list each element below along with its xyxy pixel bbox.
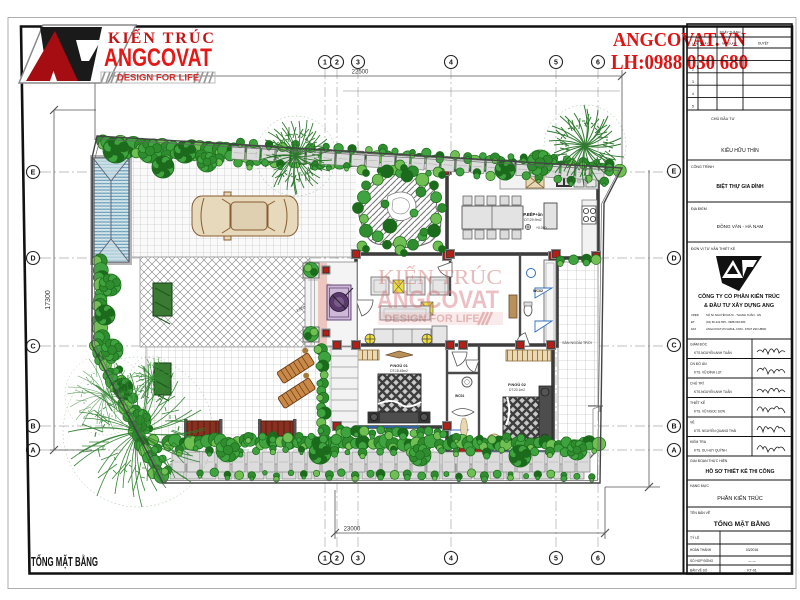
svg-text:22500: 22500 [352, 70, 369, 76]
svg-text:6: 6 [596, 59, 600, 66]
svg-text:3: 3 [356, 555, 360, 562]
svg-text:(04) 66.222.555 - 0988.030.680: (04) 66.222.555 - 0988.030.680 [706, 320, 746, 324]
svg-text:ĐT: ĐT [691, 320, 695, 324]
svg-text:TỔNG MẶT BẰNG: TỔNG MẶT BẰNG [714, 519, 770, 528]
svg-text:KTS. DU HUY QUỲNH: KTS. DU HUY QUỲNH [694, 449, 727, 453]
svg-text:KT-01: KT-01 [747, 569, 757, 573]
svg-text:SÂN NGOÀI TRỜI: SÂN NGOÀI TRỜI [562, 340, 592, 345]
svg-text:3: 3 [692, 80, 694, 84]
svg-text:BIỆT THỰ GIA ĐÌNH: BIỆT THỰ GIA ĐÌNH [716, 182, 764, 190]
svg-text:5: 5 [692, 105, 694, 109]
svg-text:ĐƠN VỊ TƯ VẤN THIẾT KẾ: ĐƠN VỊ TƯ VẤN THIẾT KẾ [691, 246, 736, 251]
svg-text:D: D [671, 255, 676, 262]
svg-text:1: 1 [323, 555, 327, 562]
svg-text:DESIGN FOR LIFE: DESIGN FOR LIFE [384, 313, 479, 325]
svg-text:C: C [30, 343, 35, 350]
svg-text:VẼ: VẼ [690, 420, 695, 425]
svg-text:DT:29.9m2: DT:29.9m2 [524, 218, 541, 222]
svg-text:WC01: WC01 [455, 394, 465, 398]
svg-text:HOÀN THÀNH: HOÀN THÀNH [690, 548, 712, 552]
svg-text:ANGCOVAT: ANGCOVAT [104, 44, 212, 72]
svg-text:CHỦ ĐẦU TƯ: CHỦ ĐẦU TƯ [711, 116, 736, 121]
svg-text:KTS. VŨ ĐÌNH LỢI: KTS. VŨ ĐÌNH LỢI [694, 370, 721, 375]
svg-text:+0.000: +0.000 [536, 226, 547, 230]
svg-text:CN ĐỒ ÁN: CN ĐỒ ÁN [690, 361, 707, 366]
svg-text:17300: 17300 [45, 290, 52, 310]
svg-text:P.NGỦ 01: P.NGỦ 01 [390, 363, 408, 368]
svg-text:4: 4 [692, 92, 694, 96]
svg-text:FAX: FAX [691, 327, 696, 331]
svg-text:A: A [30, 447, 35, 454]
svg-text:WC02: WC02 [533, 289, 543, 293]
svg-text:SỐ 52 NGUYỄN ĐỨC - THANH XUÂN: SỐ 52 NGUYỄN ĐỨC - THANH XUÂN - HN [706, 312, 761, 317]
svg-text:23000: 23000 [344, 527, 361, 533]
svg-text:KTS.NGUYỄN ANH TUẤN: KTS.NGUYỄN ANH TUẤN [694, 350, 732, 355]
svg-text:D: D [30, 255, 35, 262]
svg-text:ANGCOVAT: ANGCOVAT [377, 286, 499, 314]
svg-text:P.NGỦ 02: P.NGỦ 02 [508, 382, 526, 387]
svg-text:LẦN: LẦN [692, 42, 698, 46]
svg-text:LH:0988 030 680: LH:0988 030 680 [611, 50, 748, 74]
svg-text:4: 4 [449, 59, 453, 66]
svg-text:4: 4 [449, 555, 453, 562]
svg-text:ĐỒNG VĂN - HÀ NAM: ĐỒNG VĂN - HÀ NAM [717, 223, 764, 229]
svg-text:TỶ LỆ: TỶ LỆ [690, 535, 700, 540]
svg-text:GIAI ĐOẠN THỰC HIỆN: GIAI ĐOẠN THỰC HIỆN [690, 458, 728, 463]
svg-text:KIỂM TRA: KIỂM TRA [690, 439, 707, 444]
svg-text:1: 1 [692, 55, 694, 59]
svg-text:CÔNG TRÌNH: CÔNG TRÌNH [691, 164, 714, 169]
svg-text:BẢN VẼ SỐ: BẢN VẼ SỐ [690, 568, 708, 573]
svg-text:5: 5 [554, 555, 558, 562]
svg-text:CÔNG TY CỔ PHẦN KIẾN TRÚC: CÔNG TY CỔ PHẦN KIẾN TRÚC [698, 292, 780, 300]
svg-text:2: 2 [335, 59, 339, 66]
svg-text:THIẾT KẾ: THIẾT KẾ [690, 400, 706, 405]
svg-text:NỘI DUNG: NỘI DUNG [722, 41, 738, 46]
svg-text:DUYỆT: DUYỆT [758, 41, 769, 46]
svg-text:E: E [31, 169, 36, 176]
svg-text:CHỦ TRÌ: CHỦ TRÌ [690, 381, 704, 386]
svg-text:KIỀU HỮU THÌN: KIỀU HỮU THÌN [721, 147, 759, 154]
svg-text:TỔNG MẶT BẰNG: TỔNG MẶT BẰNG [31, 554, 98, 569]
svg-text:B: B [671, 423, 676, 430]
svg-text:03/2016: 03/2016 [746, 548, 758, 552]
svg-text:B: B [30, 423, 35, 430]
svg-text:A: A [671, 447, 676, 454]
svg-text:DESIGN FOR LIFE: DESIGN FOR LIFE [117, 73, 199, 84]
svg-text:E: E [672, 168, 677, 175]
svg-text:KTS. VŨ NGỌC SƠN: KTS. VŨ NGỌC SƠN [694, 409, 726, 414]
svg-text:NGÀY: NGÀY [700, 42, 709, 46]
svg-text:ĐỊA ĐIỂM: ĐỊA ĐIỂM [691, 206, 707, 211]
svg-text:VPĐD: VPĐD [691, 313, 699, 317]
svg-text:2: 2 [692, 67, 694, 71]
svg-text:& ĐẦU TƯ XÂY DỰNG ANG: & ĐẦU TƯ XÂY DỰNG ANG [704, 302, 774, 309]
svg-text:ANGCOVAT.VN GMAIL.COM - KTĐT 2: ANGCOVAT.VN GMAIL.COM - KTĐT 290 UBND [706, 327, 766, 331]
svg-text:P.BẾP+ăn: P.BẾP+ăn [523, 212, 543, 217]
svg-text:TÊN BẢN VẼ: TÊN BẢN VẼ [690, 510, 711, 515]
svg-text:KTS. NGUYỄN QUANG THÁI: KTS. NGUYỄN QUANG THÁI [694, 428, 736, 433]
svg-text:GIÁM ĐỐC: GIÁM ĐỐC [690, 342, 708, 347]
svg-text:3: 3 [356, 59, 360, 66]
svg-text:HỒ SƠ THIẾT KẾ THI CÔNG: HỒ SƠ THIẾT KẾ THI CÔNG [706, 467, 775, 475]
svg-text:6: 6 [596, 555, 600, 562]
svg-text:KTS.NGUYỄN ANH TUẤN: KTS.NGUYỄN ANH TUẤN [694, 389, 732, 394]
svg-text:5: 5 [554, 59, 558, 66]
svg-text:HẠNG MỰC: HẠNG MỰC [690, 484, 709, 488]
svg-text:1: 1 [323, 59, 327, 66]
svg-text:SỐ HỢP ĐỒNG: SỐ HỢP ĐỒNG [690, 558, 714, 563]
svg-text:2: 2 [335, 555, 339, 562]
svg-text:DT:20.1m2: DT:20.1m2 [509, 388, 525, 392]
svg-text:— —: — — [748, 559, 756, 563]
svg-text:DT:18.45m2: DT:18.45m2 [390, 369, 408, 373]
svg-text:PHẦN KIẾN TRÚC: PHẦN KIẾN TRÚC [717, 495, 763, 502]
svg-text:C: C [671, 342, 676, 349]
svg-text:NGÀY THÀNH: NGÀY THÀNH [720, 31, 741, 35]
